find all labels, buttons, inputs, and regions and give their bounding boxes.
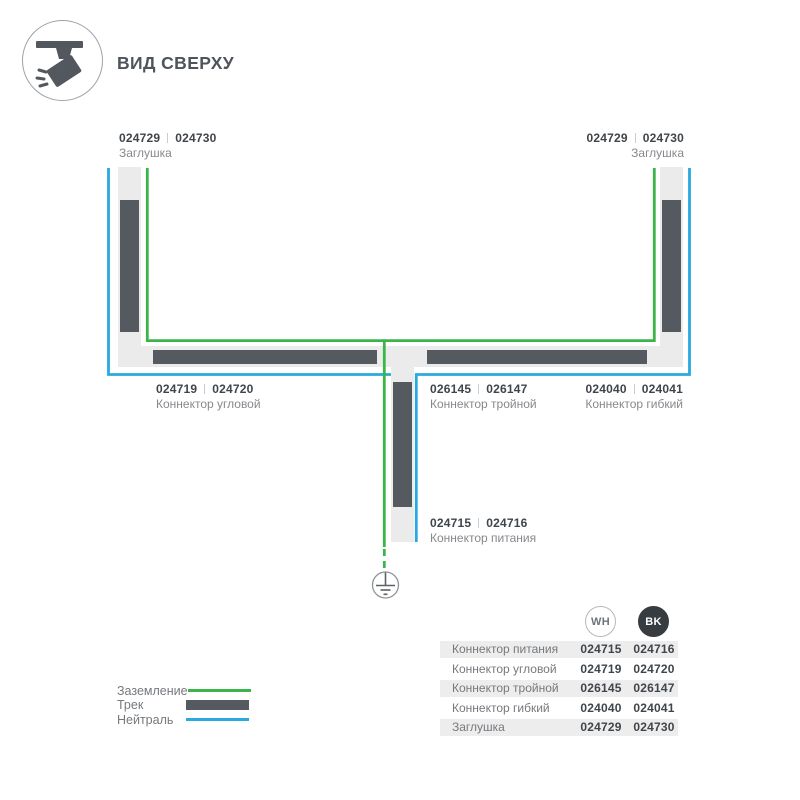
track-bar-right [662, 200, 681, 332]
row-code-wh: 024719 [572, 662, 630, 676]
part-name: Заглушка [119, 147, 217, 161]
track-bar-stem [393, 382, 412, 507]
color-bk-badge: BK [638, 606, 669, 637]
code-separator [478, 384, 479, 394]
code-bk: 024730 [175, 131, 216, 145]
table-row: Заглушка 024729 024730 [440, 719, 678, 736]
code-bk: 024716 [486, 516, 527, 530]
legend-item-ground: Заземление [117, 683, 249, 698]
row-code-wh: 024715 [572, 642, 630, 656]
label-power-connector: 024715024716 Коннектор питания [430, 517, 536, 545]
legend-label: Трек [117, 698, 186, 712]
legend-label: Нейтраль [117, 713, 186, 727]
row-name: Коннектор гибкий [440, 701, 572, 715]
row-code-bk: 024720 [630, 662, 678, 676]
row-code-wh: 024040 [572, 701, 630, 715]
code-bk: 024730 [643, 131, 684, 145]
page: ВИД СВЕРХУ 024729024730 Заглушка [0, 0, 800, 800]
code-bk: 024720 [212, 382, 253, 396]
label-flex-connector: 024040024041 Коннектор гибкий [585, 383, 683, 411]
part-name: Коннектор гибкий [585, 398, 683, 412]
part-name: Коннектор тройной [430, 398, 537, 412]
code-wh: 024719 [156, 382, 197, 396]
table-row: Коннектор гибкий 024040 024041 [440, 700, 678, 717]
code-separator [167, 133, 168, 143]
table-row: Коннектор угловой 024719 024720 [440, 661, 678, 678]
code-separator [634, 384, 635, 394]
code-wh: 024040 [586, 382, 627, 396]
part-name: Коннектор угловой [156, 398, 261, 412]
track-bar-left [120, 200, 139, 332]
parts-table-header: WH BK [440, 606, 678, 641]
row-name: Коннектор угловой [440, 662, 572, 676]
ground-line-top [147, 168, 654, 341]
legend-item-track: Трек [117, 697, 249, 712]
code-separator [478, 518, 479, 528]
table-row: Коннектор питания 024715 024716 [440, 641, 678, 658]
row-code-bk: 026147 [630, 681, 678, 695]
parts-table: WH BK Коннектор питания 024715 024716 Ко… [440, 606, 678, 739]
ground-icon [373, 572, 399, 598]
part-name: Заглушка [587, 147, 685, 161]
row-code-bk: 024716 [630, 642, 678, 656]
label-endcap-left: 024729024730 Заглушка [119, 132, 217, 160]
label-triple-connector: 026145026147 Коннектор тройной [430, 383, 537, 411]
row-name: Заглушка [440, 720, 572, 734]
table-row: Коннектор тройной 026145 026147 [440, 680, 678, 697]
row-code-bk: 024041 [630, 701, 678, 715]
page-title: ВИД СВЕРХУ [117, 53, 234, 74]
code-wh: 024729 [587, 131, 628, 145]
neutral-line-left [109, 168, 392, 375]
track-bar-swatch [186, 700, 249, 710]
code-wh: 024729 [119, 131, 160, 145]
track-bar-bottom-right [427, 350, 647, 364]
code-separator [635, 133, 636, 143]
track-bar-bottom-left [153, 350, 377, 364]
color-wh-badge: WH [585, 606, 616, 637]
code-bk: 024041 [642, 382, 683, 396]
green-line-swatch [188, 689, 251, 692]
blue-line-swatch [186, 718, 249, 721]
row-name: Коннектор питания [440, 642, 572, 656]
track-light-icon [22, 20, 103, 101]
track-light-glyph [23, 21, 101, 99]
label-endcap-right: 024729024730 Заглушка [587, 132, 685, 160]
row-code-wh: 024729 [572, 720, 630, 734]
label-corner-connector: 024719024720 Коннектор угловой [156, 383, 261, 411]
row-code-wh: 026145 [572, 681, 630, 695]
code-wh: 024715 [430, 516, 471, 530]
code-wh: 026145 [430, 382, 471, 396]
code-bk: 026147 [486, 382, 527, 396]
row-code-bk: 024730 [630, 720, 678, 734]
legend-item-neutral: Нейтраль [117, 712, 249, 727]
part-name: Коннектор питания [430, 532, 536, 546]
code-separator [204, 384, 205, 394]
legend-label: Заземление [117, 684, 188, 698]
row-name: Коннектор тройной [440, 681, 572, 695]
